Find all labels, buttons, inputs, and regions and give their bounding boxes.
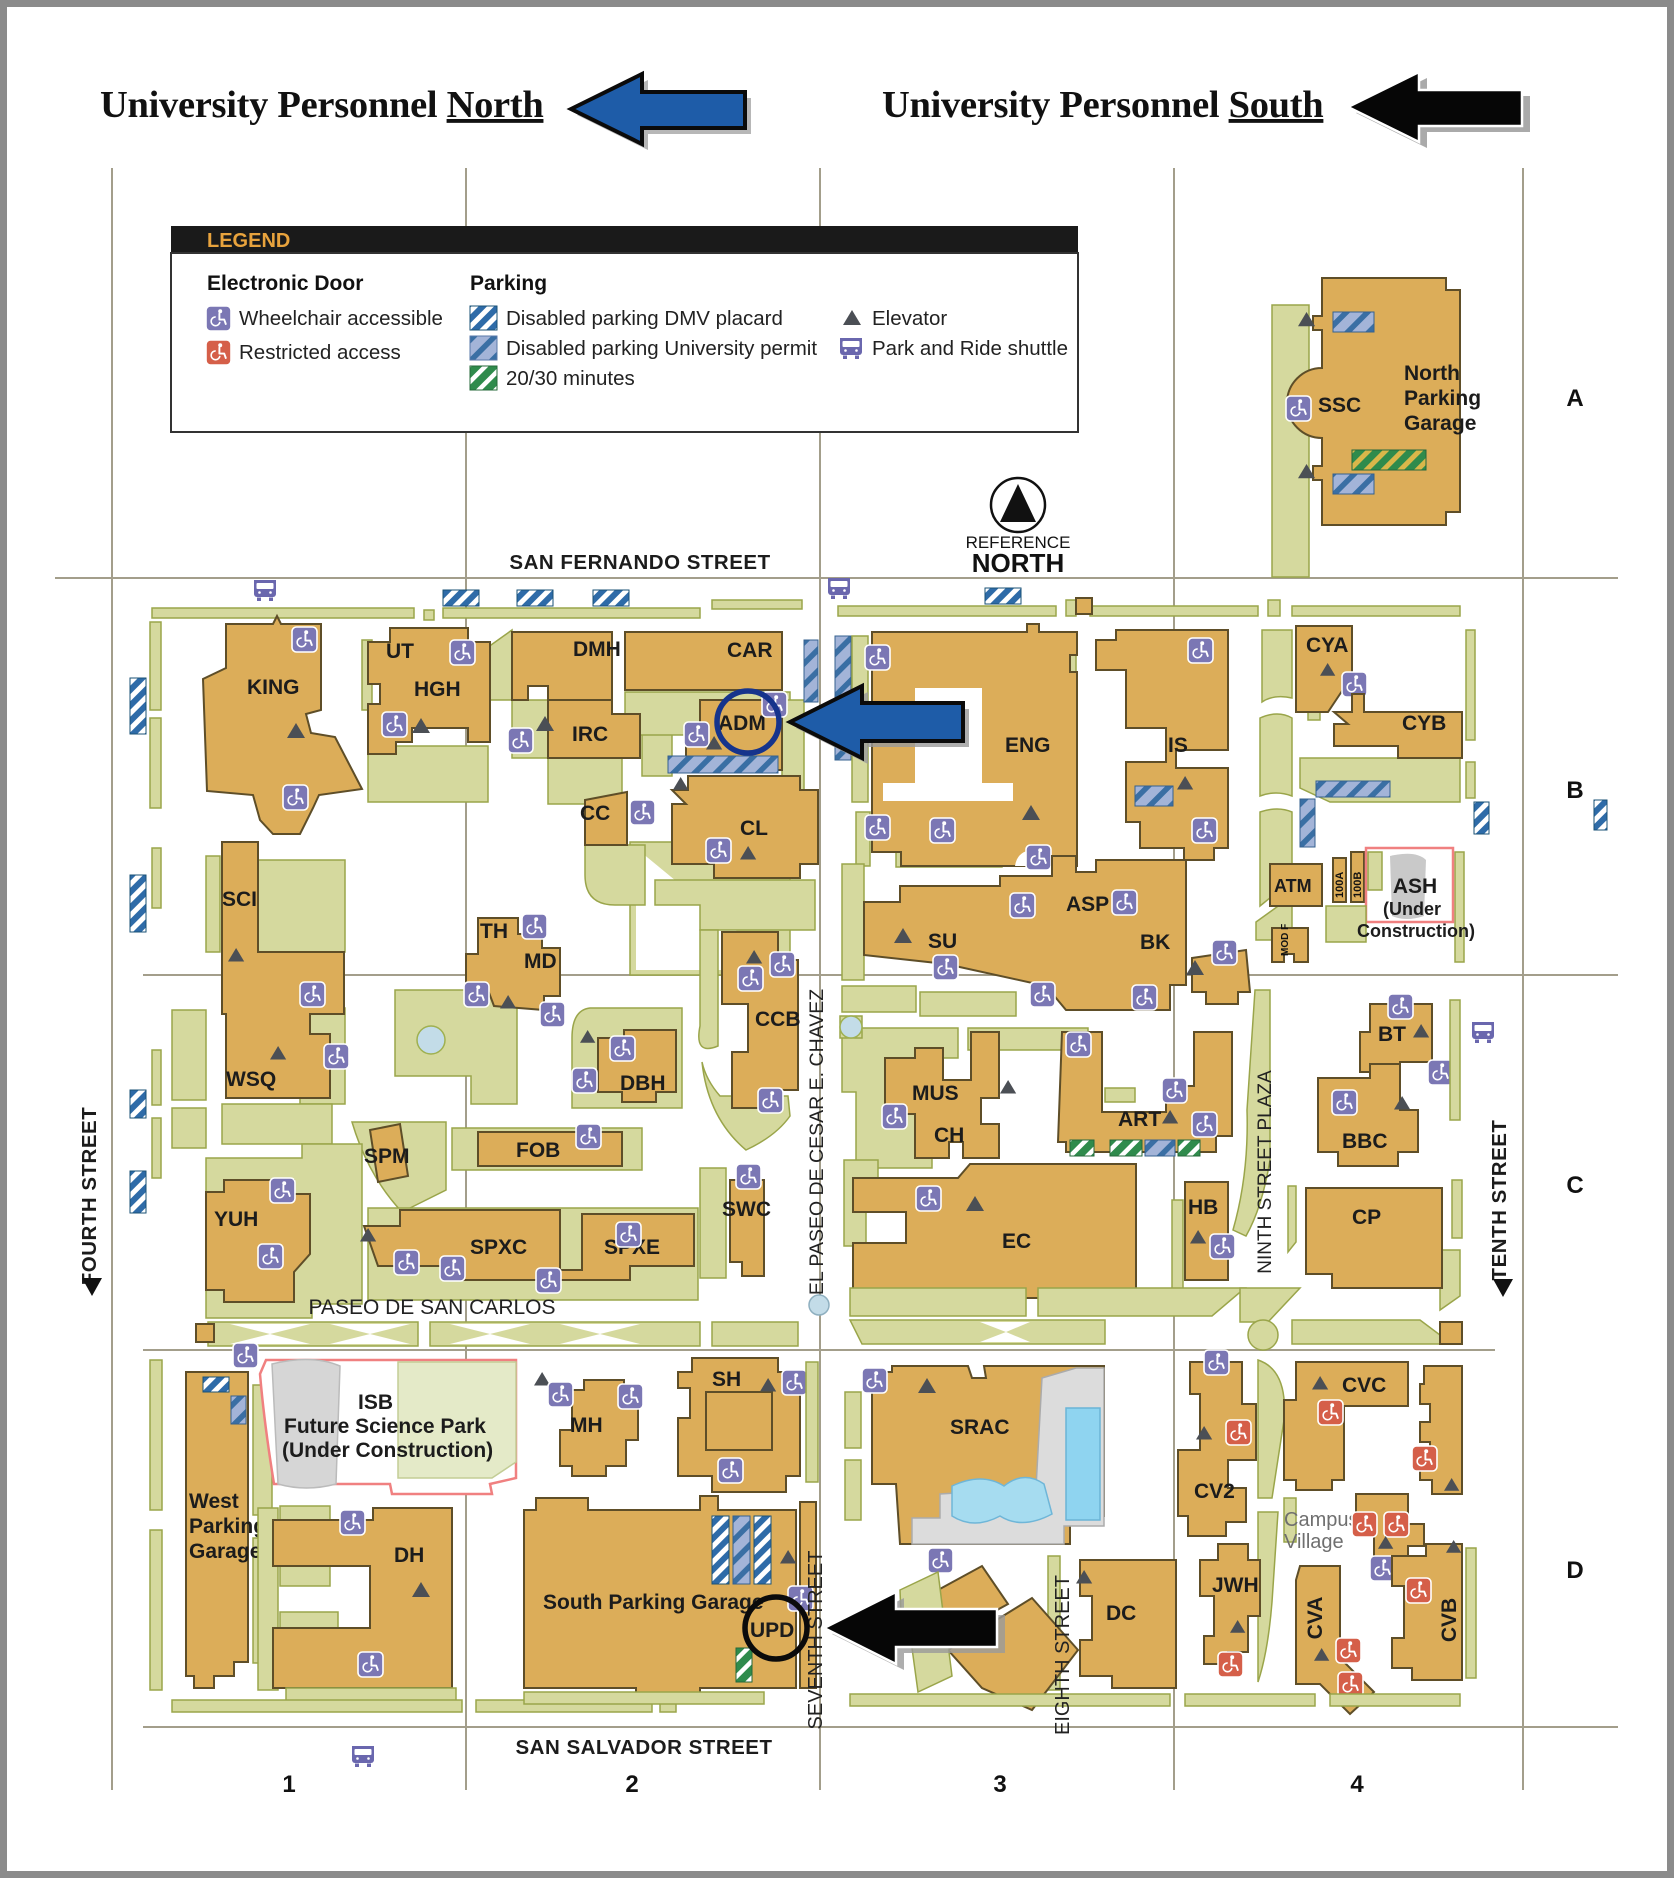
svg-text:University Personnel South: University Personnel South [882,84,1323,126]
svg-text:DC: DC [1106,1602,1136,1625]
svg-text:CYA: CYA [1306,634,1348,657]
svg-text:Parking: Parking [470,272,547,295]
svg-text:4: 4 [1350,1771,1364,1798]
svg-text:SSC: SSC [1318,394,1361,417]
svg-text:TENTH STREET: TENTH STREET [1488,1120,1511,1281]
svg-text:Campus: Campus [1284,1509,1358,1531]
svg-text:LEGEND: LEGEND [207,230,290,252]
svg-text:HB: HB [1188,1196,1218,1219]
svg-text:CCB: CCB [755,1008,801,1031]
svg-text:Construction): Construction) [1357,921,1475,941]
svg-text:ASH: ASH [1393,875,1437,898]
svg-text:CYB: CYB [1402,712,1446,735]
svg-text:Parking: Parking [189,1515,266,1538]
svg-text:SRAC: SRAC [950,1416,1010,1439]
svg-text:SEVENTH STREET: SEVENTH STREET [805,1551,827,1730]
svg-text:Parking: Parking [1404,387,1481,410]
svg-text:DBH: DBH [620,1072,666,1095]
svg-text:YUH: YUH [214,1208,258,1231]
svg-text:HGH: HGH [414,678,461,701]
svg-text:(Under: (Under [1383,899,1441,919]
svg-text:CP: CP [1352,1206,1381,1229]
svg-text:CVA: CVA [1304,1597,1327,1640]
svg-text:IRC: IRC [572,723,608,746]
svg-text:SAN SALVADOR STREET: SAN SALVADOR STREET [515,1736,772,1759]
svg-text:ENG: ENG [1005,734,1051,757]
svg-text:CL: CL [740,817,768,840]
svg-text:MUS: MUS [912,1082,959,1105]
svg-text:DH: DH [394,1544,424,1567]
svg-text:North: North [1404,362,1460,385]
svg-text:SH: SH [712,1368,741,1391]
svg-text:EL PASEO DE CESAR E. CHAVEZ: EL PASEO DE CESAR E. CHAVEZ [806,989,828,1295]
svg-text:West: West [189,1490,239,1513]
svg-text:NINTH STREET PLAZA: NINTH STREET PLAZA [1255,1070,1276,1274]
svg-text:South Parking Garage: South Parking Garage [543,1591,764,1614]
svg-text:C: C [1566,1172,1583,1199]
svg-text:SAN FERNANDO STREET: SAN FERNANDO STREET [509,551,770,574]
svg-text:3: 3 [993,1771,1006,1798]
svg-text:SPXC: SPXC [470,1236,527,1259]
svg-text:100A: 100A [1334,872,1346,898]
svg-text:EIGHTH STREET: EIGHTH STREET [1052,1575,1074,1735]
svg-text:ASP: ASP [1066,893,1109,916]
svg-text:SU: SU [928,930,957,953]
svg-text:Garage: Garage [189,1540,261,1563]
svg-text:Garage: Garage [1404,412,1476,435]
svg-text:KING: KING [247,676,300,699]
svg-text:MH: MH [570,1414,603,1437]
svg-text:University Personnel North: University Personnel North [100,84,543,126]
svg-text:100B: 100B [1352,872,1364,898]
svg-text:SWC: SWC [722,1198,771,1221]
svg-text:ATM: ATM [1274,876,1312,896]
svg-text:FOB: FOB [516,1139,560,1162]
svg-text:BT: BT [1378,1023,1406,1046]
svg-text:ART: ART [1118,1108,1161,1131]
svg-text:DMH: DMH [573,638,621,661]
svg-text:IS: IS [1168,734,1188,757]
svg-text:PASEO DE SAN CARLOS: PASEO DE SAN CARLOS [308,1296,555,1319]
svg-text:BBC: BBC [1342,1130,1388,1153]
svg-text:CVC: CVC [1342,1374,1386,1397]
svg-text:Park and Ride shuttle: Park and Ride shuttle [872,337,1068,360]
svg-text:EC: EC [1002,1230,1031,1253]
svg-text:CAR: CAR [727,639,773,662]
svg-text:MOD F: MOD F [1280,924,1291,956]
svg-text:Elevator: Elevator [872,307,947,330]
svg-text:CV2: CV2 [1194,1480,1235,1503]
svg-text:SCI: SCI [222,888,257,911]
svg-text:ADM: ADM [718,712,766,735]
svg-text:B: B [1566,777,1583,804]
svg-text:1: 1 [282,1771,295,1798]
svg-text:Village: Village [1284,1531,1344,1553]
svg-text:Future Science Park: Future Science Park [284,1415,486,1438]
svg-text:BK: BK [1140,931,1170,954]
svg-text:MD: MD [524,950,557,973]
svg-text:TH: TH [480,920,508,943]
svg-text:SPM: SPM [364,1145,410,1168]
svg-text:Wheelchair accessible: Wheelchair accessible [239,307,443,330]
svg-text:Electronic Door: Electronic Door [207,272,363,295]
svg-text:Restricted access: Restricted access [239,341,401,364]
svg-text:(Under Construction): (Under Construction) [282,1439,493,1462]
svg-text:20/30 minutes: 20/30 minutes [506,367,635,390]
svg-text:WSQ: WSQ [226,1068,276,1091]
svg-text:Disabled parking DMV placard: Disabled parking DMV placard [506,307,783,330]
svg-text:UPD: UPD [750,1619,794,1642]
svg-text:CH: CH [934,1124,964,1147]
svg-text:A: A [1566,385,1583,412]
svg-text:CC: CC [580,802,610,825]
svg-text:D: D [1566,1557,1583,1584]
svg-text:2: 2 [625,1771,638,1798]
svg-text:JWH: JWH [1212,1574,1259,1597]
svg-text:Disabled parking University pe: Disabled parking University permit [506,337,817,360]
svg-text:FOURTH STREET: FOURTH STREET [78,1107,101,1285]
svg-text:CVB: CVB [1438,1598,1461,1642]
svg-text:ISB: ISB [358,1391,393,1414]
svg-text:NORTH: NORTH [972,548,1064,578]
svg-text:UT: UT [386,640,414,663]
